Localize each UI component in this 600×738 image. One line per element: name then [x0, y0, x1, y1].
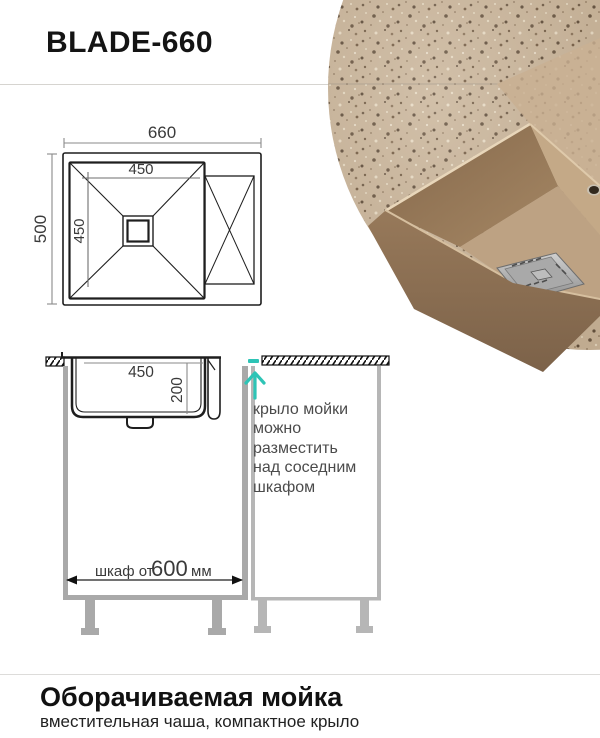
product-photo	[300, 0, 600, 380]
up-arrow-icon	[246, 359, 264, 398]
wing-channel	[208, 358, 220, 419]
countertop-hatch-left	[46, 357, 64, 366]
sink-photo-illustration	[300, 0, 600, 380]
dim-label-500: 500	[31, 215, 50, 243]
dim-bowl	[82, 172, 200, 287]
footer-divider	[0, 674, 600, 675]
dim-label-side-width: 450	[128, 364, 154, 381]
dim-label-cabinet-prefix: шкаф от	[95, 563, 154, 580]
dim-label-cabinet-value: 600	[151, 556, 188, 581]
dim-label-side-depth: 200	[169, 377, 186, 403]
dim-label-bowl-depth: 450	[71, 218, 88, 243]
wing-annotation: крыло мойки можно разместить над соседни…	[253, 400, 398, 497]
page-title: BLADE-660	[46, 26, 213, 60]
dim-label-660: 660	[148, 123, 176, 142]
dim-label-bowl-width: 450	[128, 161, 153, 178]
footer-subtitle: вместительная чаша, компактное крыло	[40, 712, 359, 732]
spec-sheet-page: BLADE-660	[0, 0, 600, 738]
top-view-drawing: 660 500 450 450	[25, 118, 280, 318]
drain-square-inner	[128, 221, 149, 242]
dim-label-cabinet-unit: мм	[191, 563, 212, 580]
sink-outline-top	[63, 153, 261, 305]
footer-title: Оборачиваемая мойка	[40, 682, 342, 713]
